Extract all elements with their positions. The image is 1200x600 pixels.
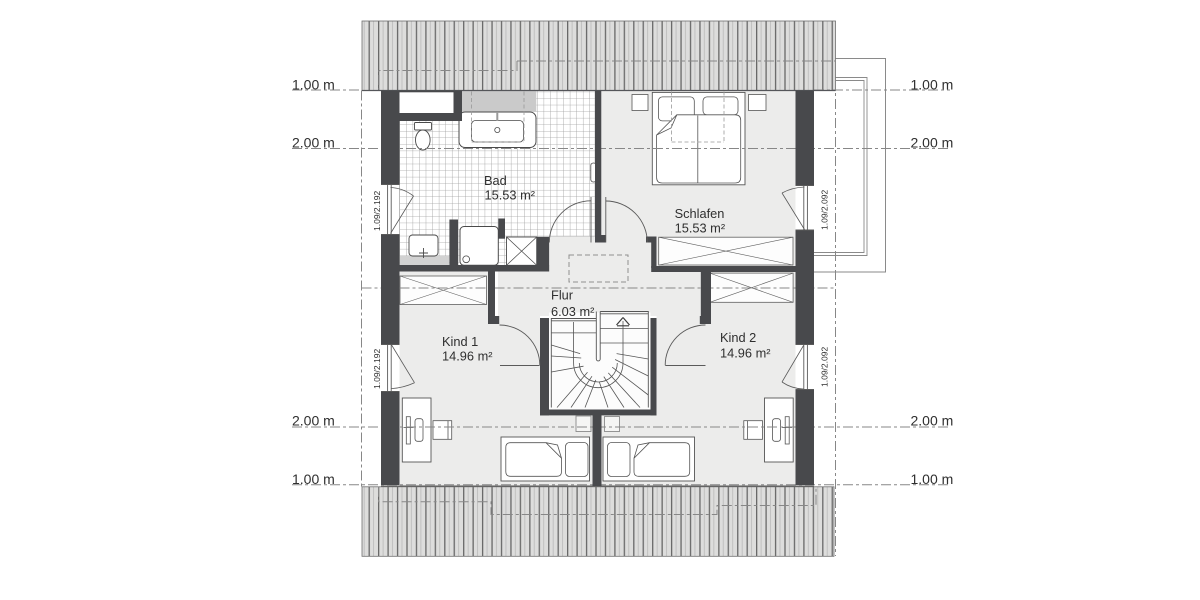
svg-text:14.96 m²: 14.96 m²	[442, 349, 493, 364]
svg-text:2.00 m: 2.00 m	[292, 413, 335, 429]
svg-text:Schlafen: Schlafen	[675, 206, 725, 221]
svg-text:Bad: Bad	[484, 173, 507, 188]
svg-text:15.53 m²: 15.53 m²	[485, 188, 536, 203]
svg-text:6.03 m²: 6.03 m²	[551, 304, 595, 319]
svg-text:2.00 m: 2.00 m	[292, 135, 335, 151]
svg-text:2.00 m: 2.00 m	[911, 413, 954, 429]
svg-text:1.00 m: 1.00 m	[292, 471, 335, 487]
svg-text:1.09/2.192: 1.09/2.192	[372, 349, 382, 389]
svg-text:14.96 m²: 14.96 m²	[720, 346, 771, 361]
svg-text:2.00 m: 2.00 m	[911, 135, 954, 151]
svg-text:1.09/2.092: 1.09/2.092	[820, 347, 830, 387]
svg-text:Kind 1: Kind 1	[442, 334, 478, 349]
svg-text:15.53 m²: 15.53 m²	[675, 221, 726, 236]
svg-text:1.00 m: 1.00 m	[292, 76, 335, 92]
svg-text:1.09/2.192: 1.09/2.192	[372, 191, 382, 231]
svg-text:1.00 m: 1.00 m	[911, 76, 954, 92]
svg-text:1.00 m: 1.00 m	[911, 471, 954, 487]
svg-text:Flur: Flur	[551, 288, 574, 303]
svg-text:Kind 2: Kind 2	[720, 330, 756, 345]
svg-text:1.09/2.092: 1.09/2.092	[820, 190, 830, 230]
